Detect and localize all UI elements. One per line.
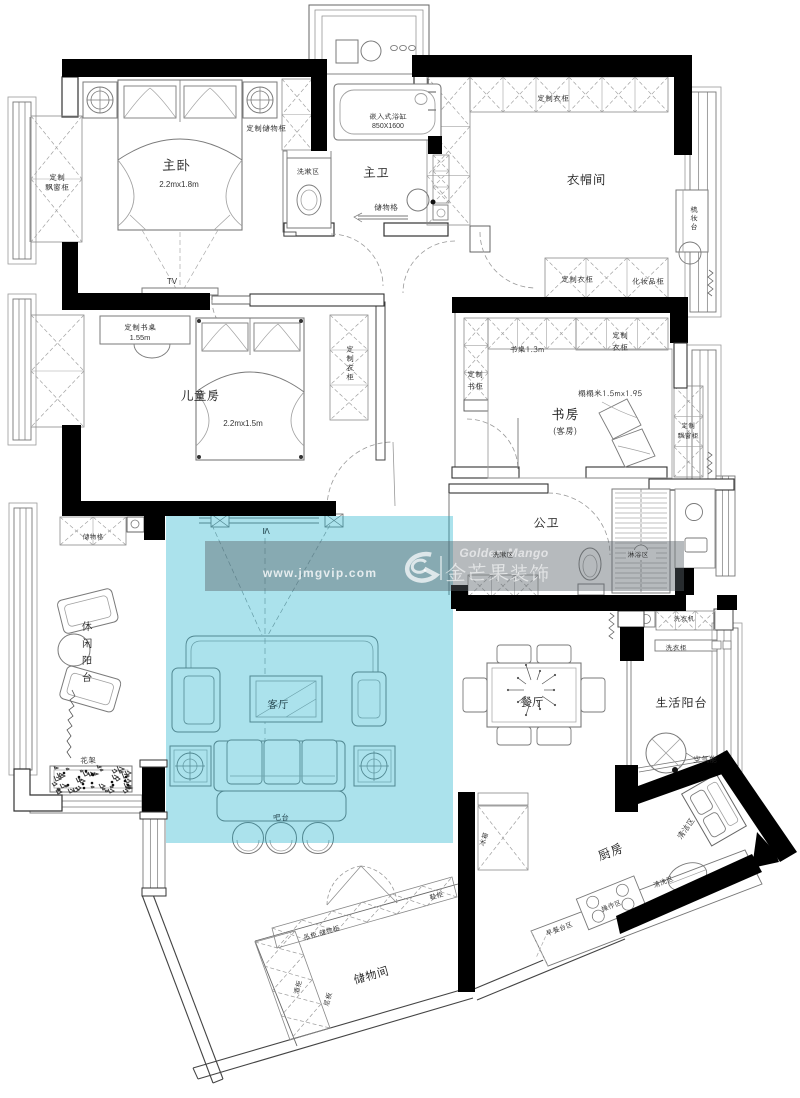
svg-text:Golden Mango: Golden Mango [459, 546, 548, 560]
svg-text:2.2mx1.8m: 2.2mx1.8m [159, 180, 199, 189]
svg-text:TV: TV [167, 277, 178, 286]
svg-text:2.2mx1.5m: 2.2mx1.5m [223, 419, 263, 428]
svg-text:www.jmgvip.com: www.jmgvip.com [262, 566, 377, 580]
svg-text:850X1600: 850X1600 [372, 123, 404, 130]
svg-text:VI: VI [262, 526, 270, 535]
svg-text:1.55m: 1.55m [130, 333, 151, 342]
